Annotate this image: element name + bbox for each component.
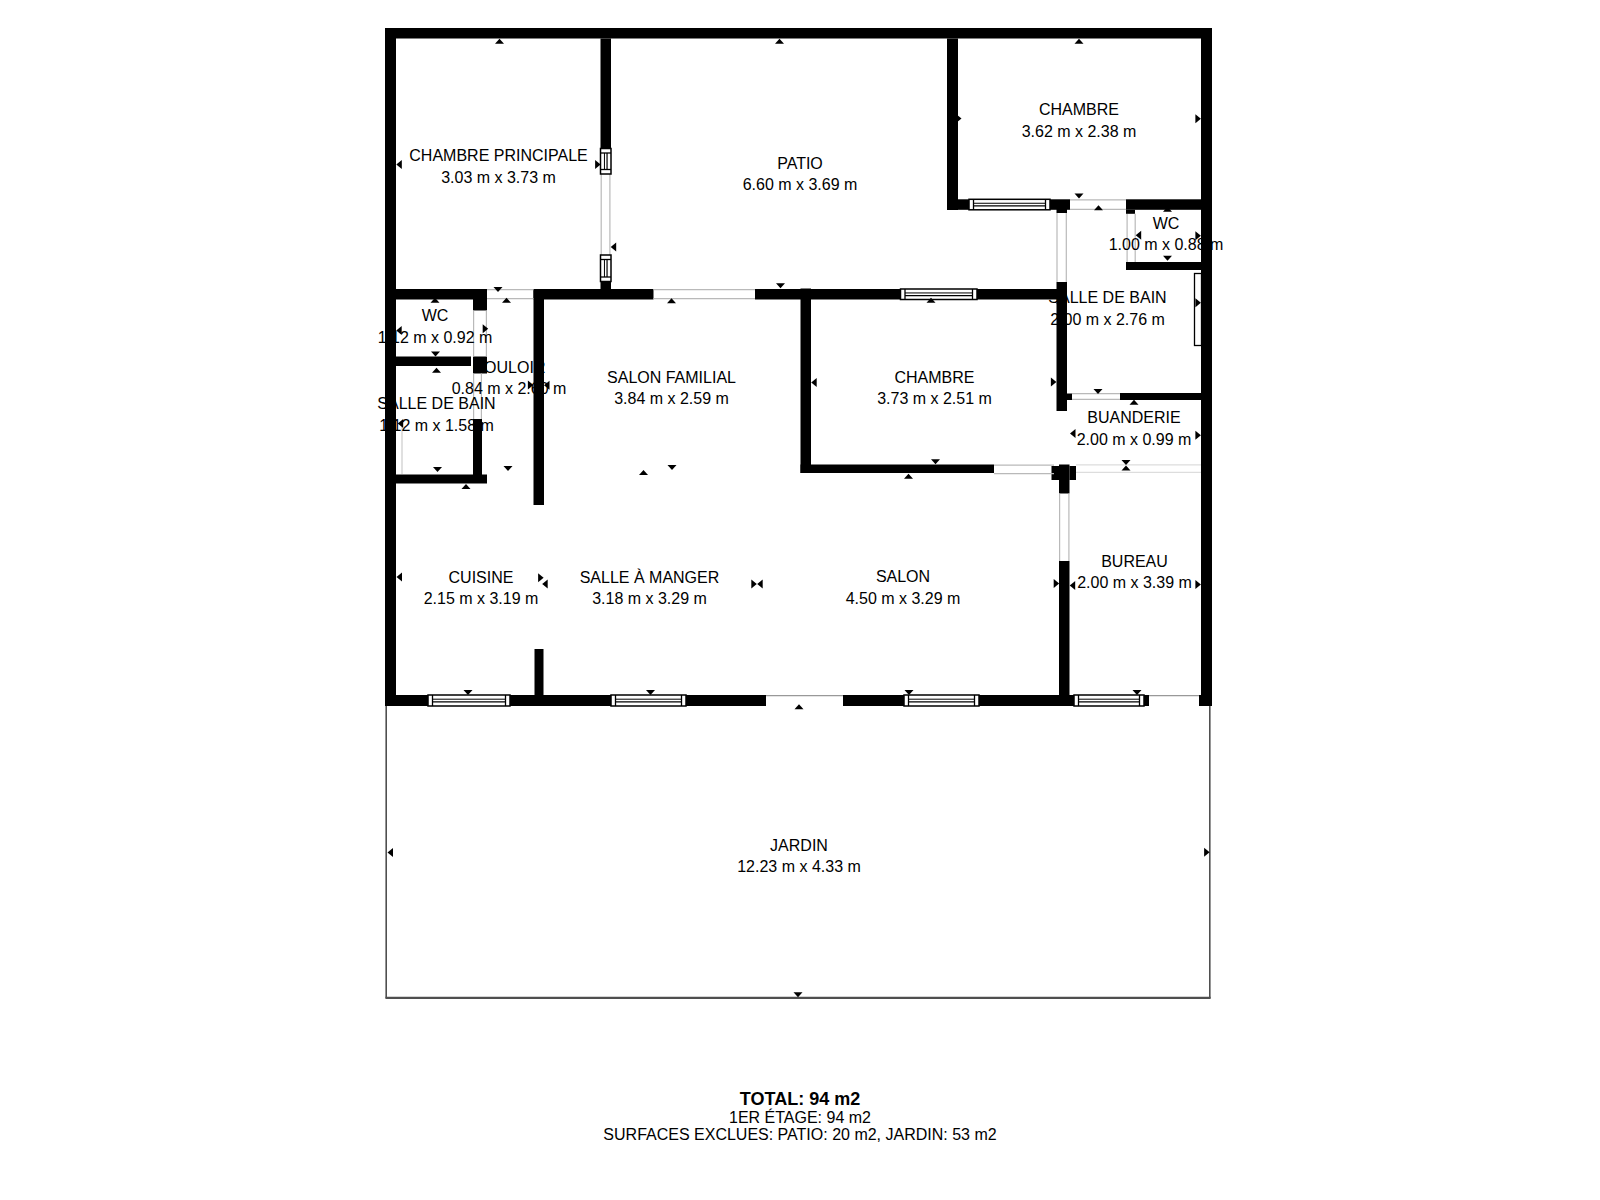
svg-text:SALLE À MANGER: SALLE À MANGER <box>580 568 720 586</box>
svg-text:CHAMBRE: CHAMBRE <box>894 369 974 386</box>
svg-text:2.00 m x 3.39 m: 2.00 m x 3.39 m <box>1077 574 1192 591</box>
svg-text:COULOIR: COULOIR <box>473 359 546 376</box>
svg-text:BUREAU: BUREAU <box>1101 553 1168 570</box>
svg-text:1.00 m x 0.88 m: 1.00 m x 0.88 m <box>1109 236 1224 253</box>
svg-text:12.23 m x 4.33 m: 12.23 m x 4.33 m <box>737 858 861 875</box>
svg-text:SALLE DE BAIN: SALLE DE BAIN <box>1048 289 1166 306</box>
svg-text:3.18 m x 3.29 m: 3.18 m x 3.29 m <box>592 590 707 607</box>
svg-text:TOTAL: 94 m2: TOTAL: 94 m2 <box>740 1089 860 1109</box>
svg-text:3.03 m x 3.73 m: 3.03 m x 3.73 m <box>441 169 556 186</box>
svg-text:1.12 m x 0.92 m: 1.12 m x 0.92 m <box>378 329 493 346</box>
svg-text:BUANDERIE: BUANDERIE <box>1087 409 1180 426</box>
svg-text:6.60 m x 3.69 m: 6.60 m x 3.69 m <box>743 176 858 193</box>
svg-text:2.00 m x 2.76 m: 2.00 m x 2.76 m <box>1050 311 1165 328</box>
svg-text:PATIO: PATIO <box>777 155 823 172</box>
svg-text:3.62 m x 2.38 m: 3.62 m x 2.38 m <box>1022 123 1137 140</box>
svg-text:WC: WC <box>422 307 449 324</box>
svg-text:2.15 m x 3.19 m: 2.15 m x 3.19 m <box>424 590 539 607</box>
svg-text:3.73 m x 2.51 m: 3.73 m x 2.51 m <box>877 390 992 407</box>
svg-text:WC: WC <box>1153 215 1180 232</box>
svg-text:SALON FAMILIAL: SALON FAMILIAL <box>607 369 736 386</box>
svg-text:CHAMBRE PRINCIPALE: CHAMBRE PRINCIPALE <box>409 147 587 164</box>
svg-text:1ER ÉTAGE: 94 m2: 1ER ÉTAGE: 94 m2 <box>729 1108 871 1126</box>
svg-text:2.00 m x 0.99 m: 2.00 m x 0.99 m <box>1077 431 1192 448</box>
svg-text:SALLE DE BAIN: SALLE DE BAIN <box>377 395 495 412</box>
svg-text:3.84 m x 2.59 m: 3.84 m x 2.59 m <box>614 390 729 407</box>
svg-text:CUISINE: CUISINE <box>449 569 514 586</box>
svg-text:SURFACES EXCLUES: PATIO: 20 m2: SURFACES EXCLUES: PATIO: 20 m2, JARDIN: … <box>603 1126 996 1143</box>
svg-text:1.12 m x 1.58 m: 1.12 m x 1.58 m <box>379 417 494 434</box>
svg-text:JARDIN: JARDIN <box>770 837 828 854</box>
svg-text:SALON: SALON <box>876 568 930 585</box>
svg-text:4.50 m x 3.29 m: 4.50 m x 3.29 m <box>846 590 961 607</box>
svg-text:CHAMBRE: CHAMBRE <box>1039 101 1119 118</box>
